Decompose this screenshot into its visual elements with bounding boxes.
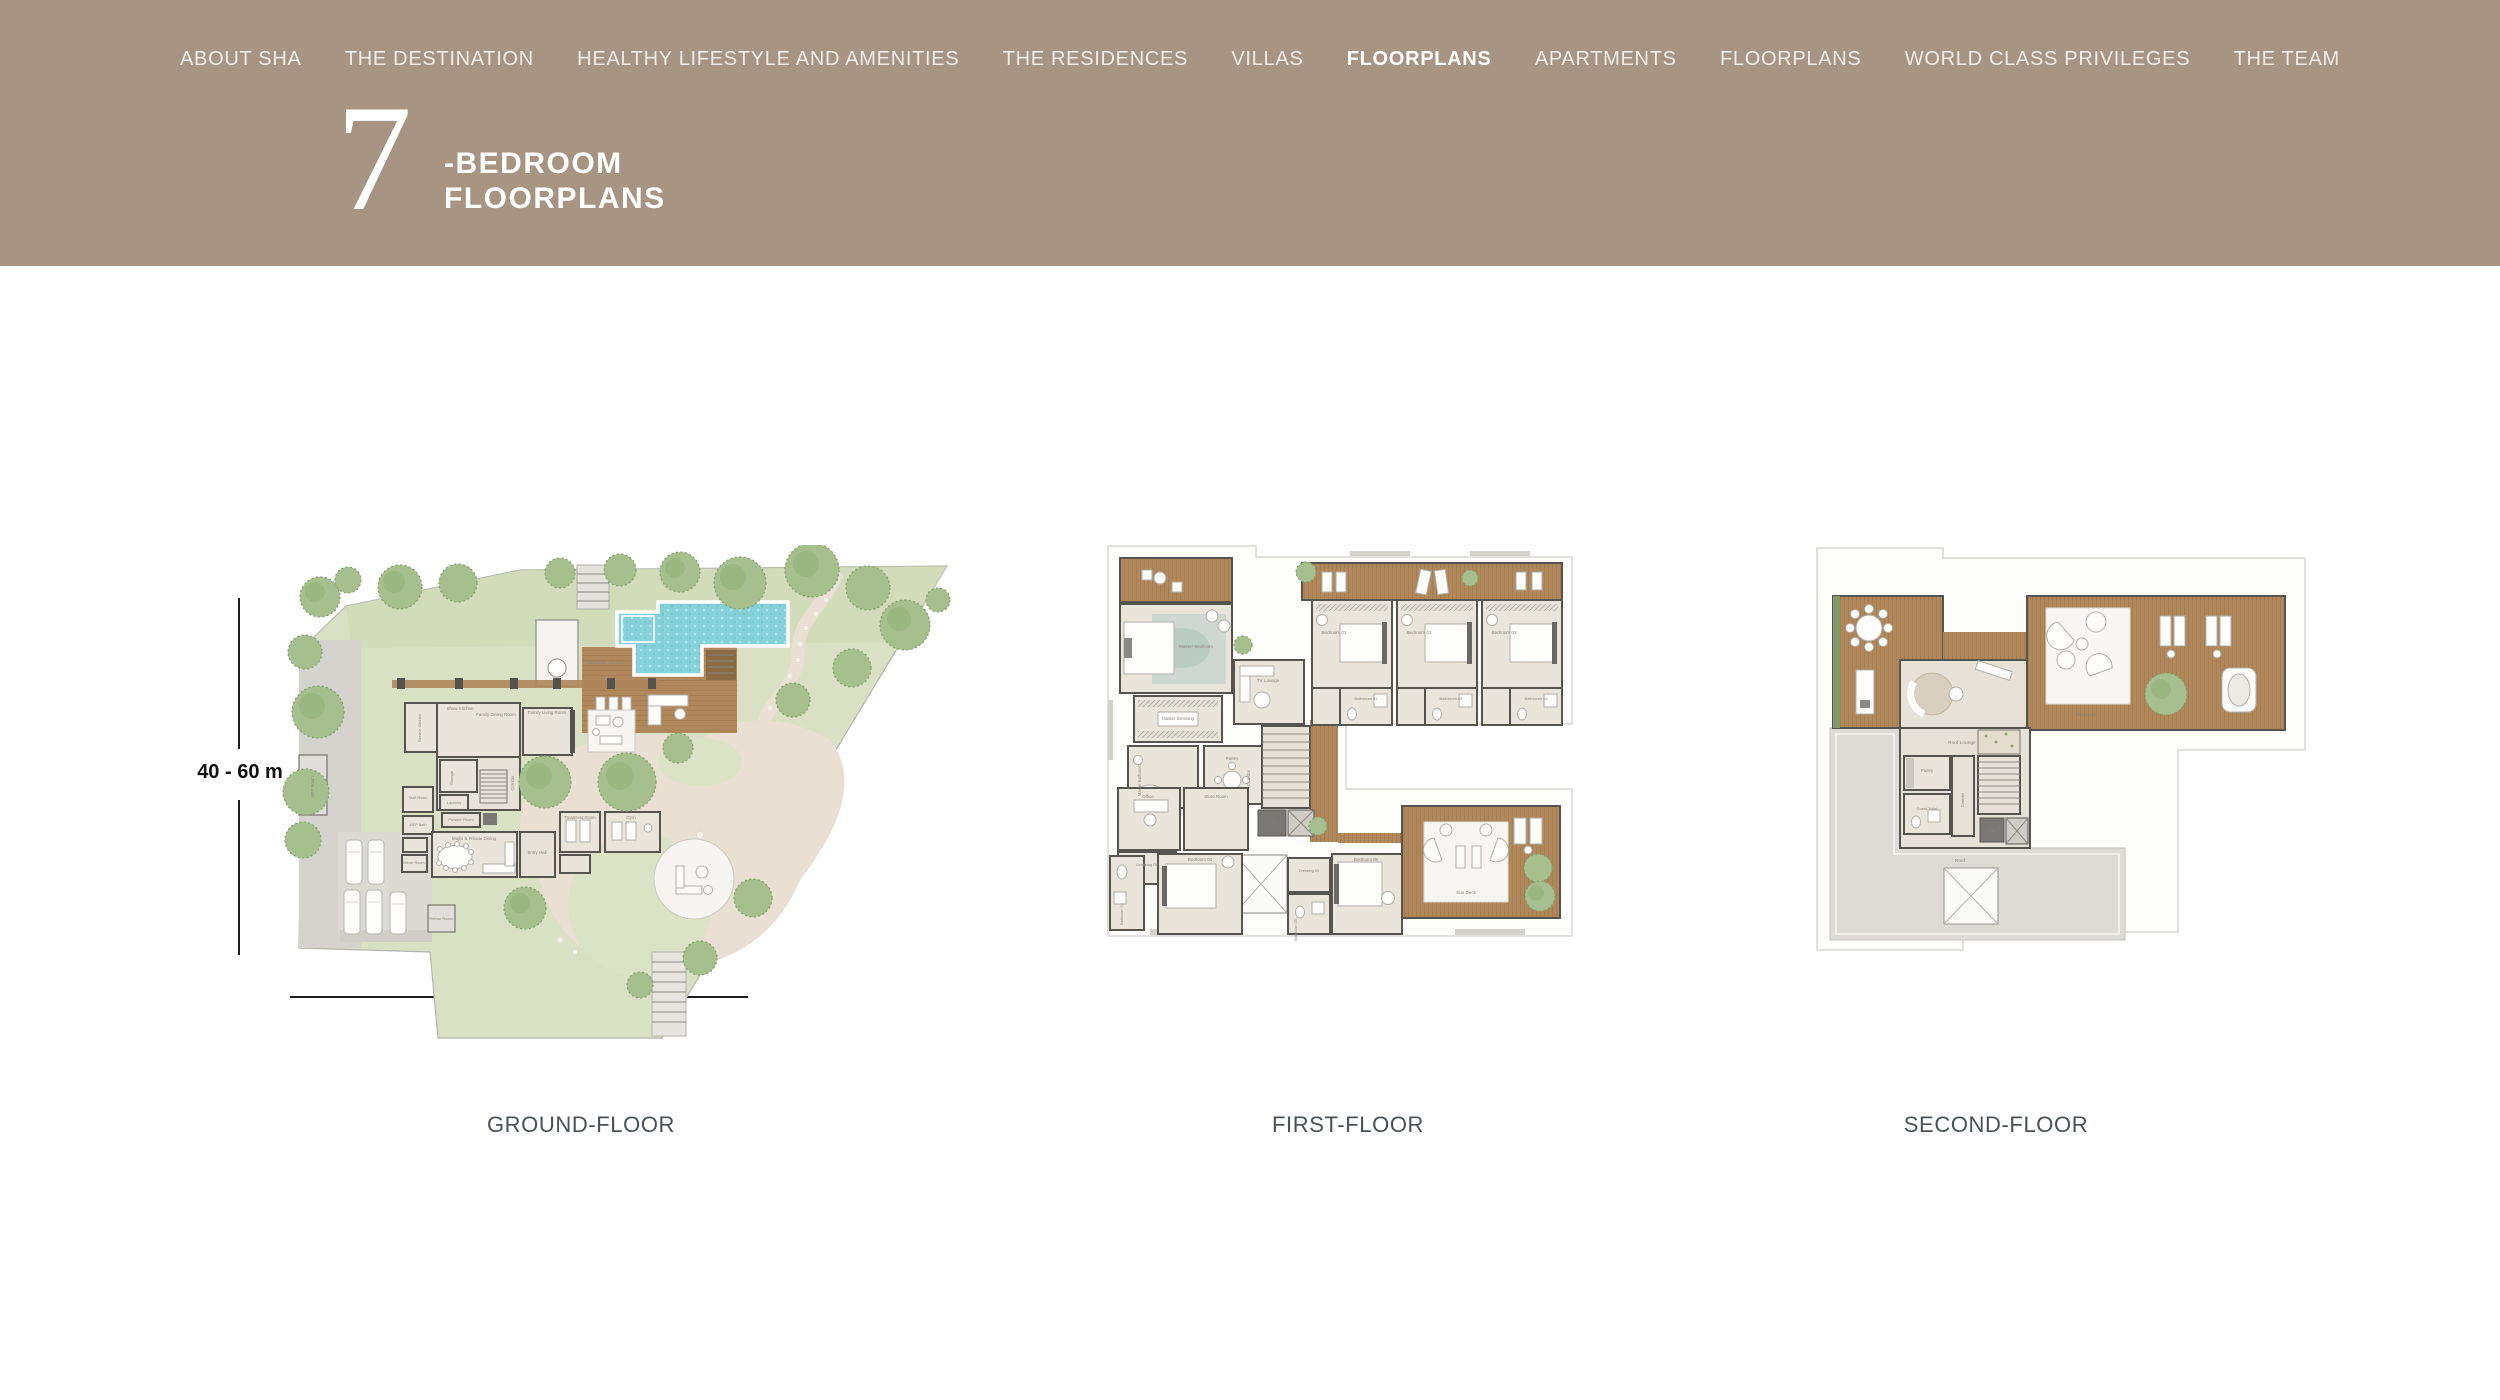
svg-text:MEP Room: MEP Room	[310, 776, 315, 798]
svg-text:Bedroom 04: Bedroom 04	[1188, 857, 1212, 862]
svg-text:Entry Hall: Entry Hall	[527, 850, 546, 855]
svg-text:Master Bathroom: Master Bathroom	[1137, 763, 1142, 796]
svg-text:Majlis & Private Dining: Majlis & Private Dining	[452, 836, 496, 841]
nav-item-residences[interactable]: THE RESIDENCES	[1003, 48, 1188, 71]
ground-floor-label: GROUND-FLOOR	[451, 1112, 711, 1138]
svg-text:Bathroom 02: Bathroom 02	[1440, 696, 1464, 701]
svg-text:Dressing 05: Dressing 05	[1299, 869, 1319, 873]
first-floor-plan: Master Bedroom Master Dressing Master Ba…	[1100, 540, 1580, 945]
svg-text:Corridor: Corridor	[1246, 770, 1251, 786]
svg-text:Roof Lounge: Roof Lounge	[1948, 740, 1976, 746]
nav-item-apartments[interactable]: APARTMENTS	[1535, 48, 1677, 71]
core-rooms	[1900, 660, 2030, 848]
page-title: -BEDROOM FLOORPLANS	[444, 146, 666, 216]
circular-patio	[654, 839, 734, 919]
svg-text:Corridor: Corridor	[1960, 792, 1965, 807]
svg-text:Lift: Lift	[1269, 821, 1275, 826]
svg-text:Master Dressing: Master Dressing	[1162, 716, 1195, 721]
svg-text:Bedroom 01: Bedroom 01	[1321, 630, 1346, 635]
svg-text:Family Dining Room: Family Dining Room	[476, 712, 516, 717]
svg-text:TV Lounge: TV Lounge	[1257, 678, 1280, 683]
main-stairs	[480, 770, 507, 803]
hero-number: 7	[336, 82, 412, 234]
second-floor-plan: Roof Lounge Pantry Guest Toilet Corridor…	[1810, 540, 2310, 955]
svg-text:Staff Room: Staff Room	[409, 796, 428, 800]
svg-text:Store Room: Store Room	[1204, 794, 1228, 799]
main-nav: ABOUT SHA THE DESTINATION HEALTHY LIFEST…	[180, 48, 2340, 71]
svg-text:Bathroom 04: Bathroom 04	[1120, 903, 1124, 925]
svg-text:Show Kitchen: Show Kitchen	[447, 706, 474, 711]
nav-item-team[interactable]: THE TEAM	[2234, 48, 2340, 71]
svg-text:Bathroom 05: Bathroom 05	[1294, 919, 1298, 941]
svg-text:Bathroom 03: Bathroom 03	[1525, 696, 1549, 701]
svg-text:Guest Toilet: Guest Toilet	[1916, 806, 1938, 811]
svg-text:Family Living Room: Family Living Room	[528, 710, 567, 715]
svg-text:Driver Room: Driver Room	[403, 861, 424, 865]
svg-text:Sun Deck: Sun Deck	[2076, 712, 2097, 718]
stairs	[1262, 726, 1310, 808]
page-title-line1: -BEDROOM	[444, 146, 666, 181]
nav-item-floorplans-active[interactable]: FLOORPLANS	[1347, 48, 1492, 71]
svg-text:Service Kitchen: Service Kitchen	[417, 714, 422, 742]
nav-item-about-sha[interactable]: ABOUT SHA	[180, 48, 302, 71]
page: ABOUT SHA THE DESTINATION HEALTHY LIFEST…	[0, 0, 2500, 1400]
svg-text:Pantry: Pantry	[1226, 756, 1239, 761]
nav-item-floorplans-2[interactable]: FLOORPLANS	[1720, 48, 1861, 71]
svg-text:Bedroom 02: Bedroom 02	[1406, 630, 1431, 635]
nav-item-destination[interactable]: THE DESTINATION	[345, 48, 534, 71]
stairs	[1978, 730, 2020, 814]
nav-item-healthy-lifestyle[interactable]: HEALTHY LIFESTYLE AND AMENITIES	[577, 48, 959, 71]
svg-text:Lift: Lift	[488, 818, 493, 822]
svg-text:Bedroom 05: Bedroom 05	[1354, 857, 1378, 862]
svg-text:Gym: Gym	[626, 815, 636, 820]
garden-stair	[652, 952, 686, 1036]
ground-floor-plan: Outdoor Terrace Show Kitchen Family Dini…	[180, 545, 1000, 1055]
svg-text:Sun Deck: Sun Deck	[1456, 890, 1477, 895]
first-floor-label: FIRST-FLOOR	[1218, 1112, 1478, 1138]
svg-text:Corridor: Corridor	[510, 775, 515, 791]
second-floor-label: SECOND-FLOOR	[1866, 1112, 2126, 1138]
svg-text:Laundry: Laundry	[447, 800, 461, 805]
svg-text:Master Bedroom: Master Bedroom	[1179, 644, 1213, 649]
svg-text:MEP Bath: MEP Bath	[409, 823, 426, 827]
svg-text:Outdoor Terrace: Outdoor Terrace	[588, 660, 624, 666]
sun-deck-furniture	[1424, 818, 1555, 911]
nav-item-privileges[interactable]: WORLD CLASS PRIVILEGES	[1905, 48, 2190, 71]
svg-text:Pantry: Pantry	[1921, 768, 1934, 773]
svg-text:Powder Room: Powder Room	[448, 817, 474, 822]
svg-text:Office: Office	[1142, 794, 1154, 799]
svg-text:Bedroom 03: Bedroom 03	[1491, 630, 1516, 635]
svg-text:Roof: Roof	[1955, 858, 1966, 864]
nav-item-villas[interactable]: VILLAS	[1231, 48, 1303, 71]
svg-text:Dressing 04: Dressing 04	[1136, 862, 1158, 867]
svg-text:Bathroom 01: Bathroom 01	[1355, 696, 1379, 701]
svg-text:Storage: Storage	[449, 770, 454, 785]
svg-text:Refuse Room: Refuse Room	[429, 917, 452, 921]
page-title-line2: FLOORPLANS	[444, 181, 666, 216]
svg-text:Treatment Room: Treatment Room	[564, 815, 596, 820]
svg-text:Lift: Lift	[1989, 828, 1995, 833]
